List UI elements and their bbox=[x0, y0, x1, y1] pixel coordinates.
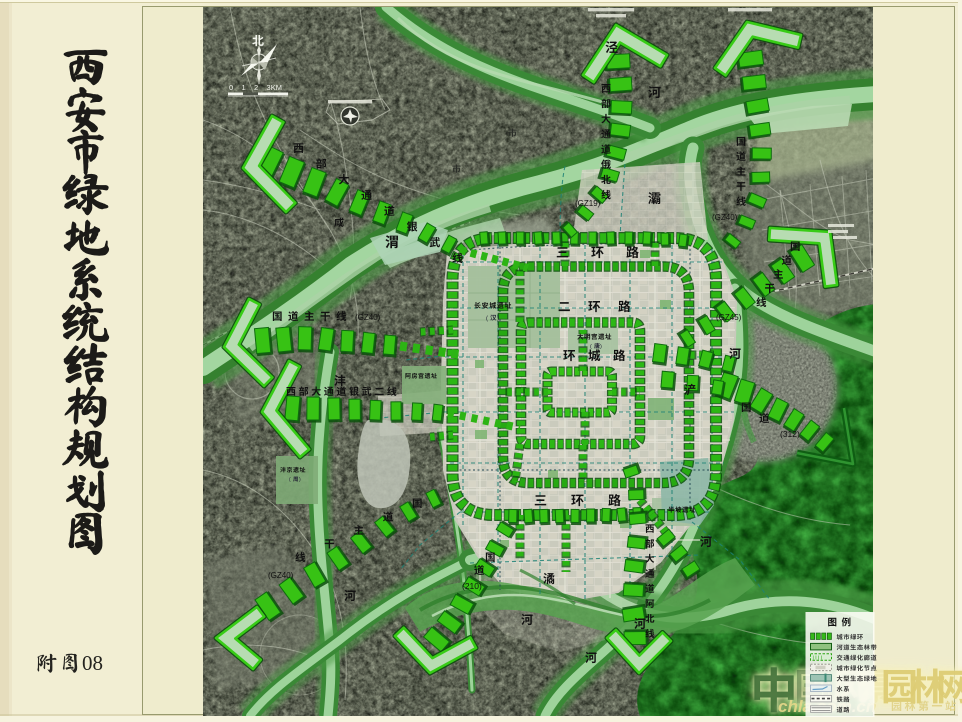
svg-text:0 1 2 3KM: 0 1 2 3KM bbox=[229, 83, 282, 92]
svg-text:I I I I: I I I I bbox=[813, 655, 823, 661]
svg-text:): ) bbox=[600, 344, 602, 350]
svg-text:(GZ45): (GZ45) bbox=[716, 313, 742, 322]
svg-text:(: ( bbox=[590, 344, 592, 350]
svg-text:(GZ40): (GZ40) bbox=[712, 213, 738, 222]
svg-text:(: ( bbox=[486, 316, 488, 322]
svg-text:(210): (210) bbox=[462, 581, 482, 591]
svg-text:(GZ40): (GZ40) bbox=[268, 571, 294, 580]
svg-text:(GZ19): (GZ19) bbox=[575, 199, 601, 208]
svg-text:(GZ40): (GZ40) bbox=[355, 313, 381, 322]
svg-text:08: 08 bbox=[82, 651, 103, 675]
svg-text:(312): (312) bbox=[780, 429, 800, 439]
svg-text:): ) bbox=[497, 316, 499, 322]
